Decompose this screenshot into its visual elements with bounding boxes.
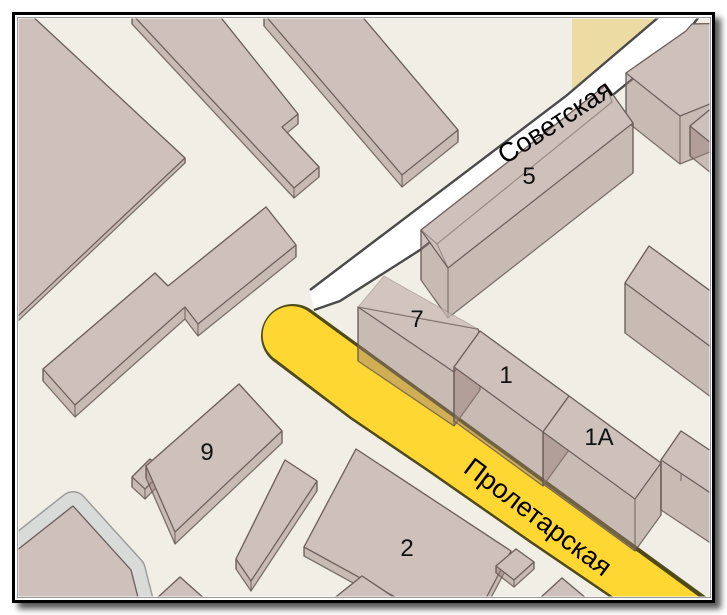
svg-text:7: 7 (410, 306, 423, 333)
svg-text:1: 1 (499, 362, 512, 389)
svg-text:9: 9 (200, 439, 213, 466)
svg-text:1А: 1А (584, 424, 613, 451)
svg-text:5: 5 (522, 163, 535, 190)
svg-text:2: 2 (400, 535, 413, 562)
